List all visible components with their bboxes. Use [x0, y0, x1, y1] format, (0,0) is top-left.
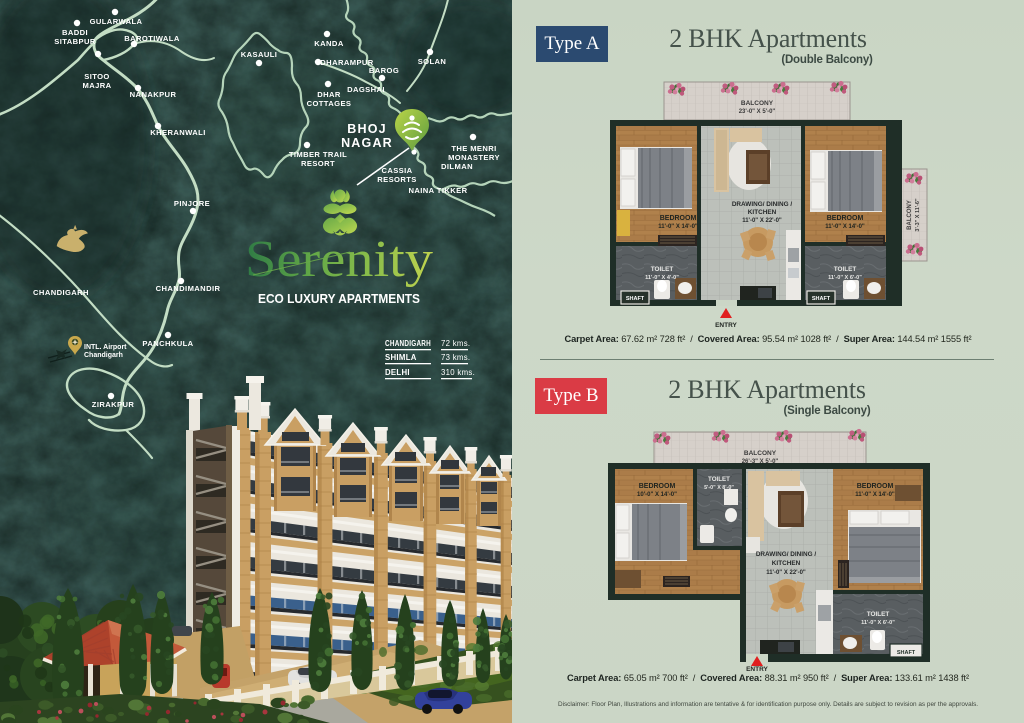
svg-text:BEDROOM: BEDROOM	[660, 215, 697, 222]
svg-text:BHOJ: BHOJ	[347, 122, 387, 136]
svg-text:SITOO: SITOO	[84, 72, 110, 81]
svg-text:TOILET: TOILET	[867, 611, 890, 618]
svg-text:Serenity: Serenity	[245, 231, 433, 288]
svg-text:23'-0" X 5'-0": 23'-0" X 5'-0"	[739, 109, 776, 115]
svg-text:SHAFT: SHAFT	[897, 650, 916, 656]
svg-text:ZIRAKPUR: ZIRAKPUR	[92, 400, 135, 409]
svg-text:SHAFT: SHAFT	[626, 296, 645, 302]
svg-text:11'-0" X 14'-0": 11'-0" X 14'-0"	[658, 224, 698, 230]
svg-text:BADDI: BADDI	[62, 28, 88, 37]
svg-text:BALCONY: BALCONY	[741, 100, 774, 107]
svg-text:72 kms.: 72 kms.	[441, 339, 470, 348]
svg-text:KASAULI: KASAULI	[241, 50, 278, 59]
svg-text:BAROG: BAROG	[369, 66, 399, 75]
svg-text:DILMAN: DILMAN	[441, 162, 473, 171]
svg-text:MAJRA: MAJRA	[82, 81, 111, 90]
svg-text:11'-0" X 4'-0": 11'-0" X 4'-0"	[645, 275, 679, 281]
svg-text:11'-0" X 22'-0": 11'-0" X 22'-0"	[766, 570, 806, 576]
svg-text:KHERANWALI: KHERANWALI	[150, 128, 205, 137]
svg-text:KITCHEN: KITCHEN	[772, 560, 801, 567]
svg-text:BEDROOM: BEDROOM	[827, 215, 864, 222]
svg-text:DRAWING/ DINING /: DRAWING/ DINING /	[732, 201, 793, 208]
svg-text:CASSIA: CASSIA	[381, 166, 412, 175]
svg-text:BAROTIWALA: BAROTIWALA	[124, 34, 180, 43]
svg-text:SITABPUR: SITABPUR	[54, 37, 96, 46]
svg-text:BALCONY: BALCONY	[744, 450, 777, 457]
svg-text:TOILET: TOILET	[651, 266, 674, 273]
svg-text:SHAFT: SHAFT	[812, 296, 831, 302]
svg-text:11'-0" X 6'-0": 11'-0" X 6'-0"	[861, 620, 895, 626]
svg-text:11'-0" X 14'-0": 11'-0" X 14'-0"	[825, 224, 865, 230]
svg-text:TOILET: TOILET	[708, 476, 730, 483]
svg-text:BALCONY: BALCONY	[907, 200, 913, 230]
svg-text:ENTRY: ENTRY	[715, 322, 737, 329]
svg-text:TIMBER TRAIL: TIMBER TRAIL	[289, 150, 347, 159]
svg-text:PANCHKULA: PANCHKULA	[142, 339, 193, 348]
svg-text:DHARAMPUR: DHARAMPUR	[320, 58, 373, 67]
svg-text:COTTAGES: COTTAGES	[307, 99, 352, 108]
svg-text:310 kms.: 310 kms.	[441, 368, 475, 377]
svg-text:PINJORE: PINJORE	[174, 199, 210, 208]
svg-text:TOILET: TOILET	[834, 266, 857, 273]
svg-text:11'-0" X 14'-0": 11'-0" X 14'-0"	[855, 492, 895, 498]
svg-text:NANAKPUR: NANAKPUR	[130, 90, 177, 99]
svg-text:11'-0" X 22'-0": 11'-0" X 22'-0"	[742, 218, 782, 224]
svg-text:BEDROOM: BEDROOM	[857, 483, 894, 490]
svg-text:DAGSHAI: DAGSHAI	[347, 85, 385, 94]
svg-text:CHANDIMANDIR: CHANDIMANDIR	[156, 284, 221, 293]
svg-text:BEDROOM: BEDROOM	[639, 483, 676, 490]
svg-text:DELHI: DELHI	[385, 368, 410, 377]
svg-text:CHANDIGARH: CHANDIGARH	[33, 288, 89, 297]
svg-text:ENTRY: ENTRY	[746, 666, 768, 673]
svg-text:RESORTS: RESORTS	[377, 175, 417, 184]
svg-text:NAGAR: NAGAR	[341, 136, 393, 150]
svg-text:NAINA TIKKER: NAINA TIKKER	[409, 186, 468, 195]
svg-text:SOLAN: SOLAN	[418, 57, 447, 66]
svg-text:MONASTERY: MONASTERY	[448, 153, 500, 162]
svg-text:DHAR: DHAR	[317, 90, 341, 99]
svg-text:5'-0" X 8'-0": 5'-0" X 8'-0"	[704, 485, 734, 491]
svg-text:11'-0" X 6'-0": 11'-0" X 6'-0"	[828, 275, 862, 281]
svg-text:RESORT: RESORT	[301, 159, 335, 168]
svg-text:CHANDIGARH: CHANDIGARH	[385, 339, 431, 348]
svg-text:INTL. Airport: INTL. Airport	[84, 344, 127, 351]
svg-text:SHIMLA: SHIMLA	[385, 353, 417, 362]
svg-text:THE MENRI: THE MENRI	[451, 144, 496, 153]
svg-text:Chandigarh: Chandigarh	[84, 352, 123, 359]
svg-text:GULARWALA: GULARWALA	[90, 17, 143, 26]
svg-text:3'-3" X 11'-6": 3'-3" X 11'-6"	[915, 198, 921, 232]
svg-text:73 kms.: 73 kms.	[441, 353, 470, 362]
svg-text:KITCHEN: KITCHEN	[748, 209, 777, 216]
svg-text:DRAWING/ DINING /: DRAWING/ DINING /	[756, 551, 817, 558]
svg-text:KANDA: KANDA	[314, 39, 344, 48]
svg-text:ECO LUXURY APARTMENTS: ECO LUXURY APARTMENTS	[258, 292, 420, 306]
svg-text:10'-0" X 14'-0": 10'-0" X 14'-0"	[637, 492, 677, 498]
